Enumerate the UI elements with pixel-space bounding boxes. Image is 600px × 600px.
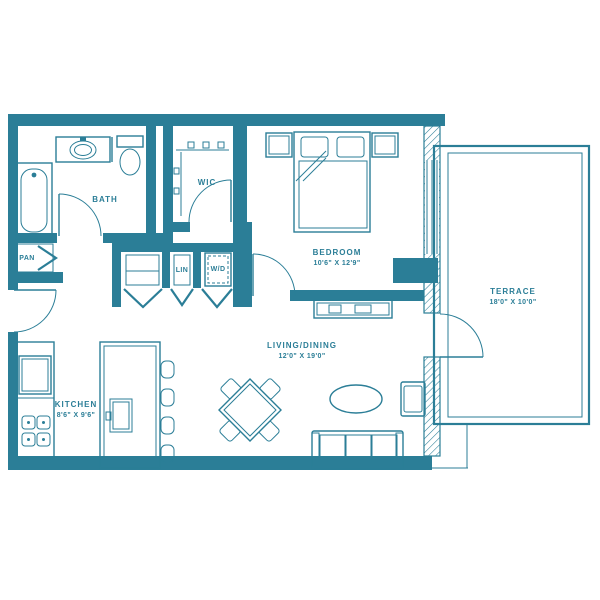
living-dining-dims: 12'0" X 19'0"	[278, 353, 325, 360]
wall-hall-bedroom	[233, 222, 252, 307]
linen-bifold-door	[171, 289, 193, 305]
refrigerator	[19, 356, 51, 394]
washer-dryer-label: W/D	[211, 266, 226, 273]
bedroom-dims: 10'6" X 12'9"	[313, 260, 360, 267]
wall-top	[8, 114, 445, 126]
dresser	[314, 300, 392, 318]
kitchen-label: KITCHEN	[55, 400, 98, 409]
bedroom-window	[425, 160, 439, 254]
wall-right-lower	[424, 357, 440, 456]
entry-door	[14, 290, 56, 332]
floor-plan: BATH PAN WIC LIN W/D BEDROOM 10'6" X 12'…	[0, 0, 600, 600]
kitchen-dims: 8'6" X 9'6"	[57, 412, 96, 419]
bedroom-label: BEDROOM	[313, 248, 362, 257]
hall-closet	[126, 255, 159, 285]
living-dining-label: LIVING/DINING	[267, 341, 337, 350]
wall-closet-divider-1	[162, 252, 170, 288]
linen-label: LIN	[176, 267, 188, 274]
room-labels: BATH PAN WIC LIN W/D BEDROOM 10'6" X 12'…	[19, 178, 536, 419]
bedroom-door	[253, 254, 295, 296]
floor-plan-page: BATH PAN WIC LIN W/D BEDROOM 10'6" X 12'…	[0, 0, 600, 600]
kitchen-island	[100, 342, 160, 468]
vanity-sink	[56, 137, 110, 162]
wall-closet-left	[112, 243, 121, 307]
bed	[294, 132, 370, 232]
coffee-table	[330, 385, 382, 413]
nightstand-right	[372, 133, 398, 157]
closet-bifold-door	[124, 289, 162, 307]
washer-dryer-bifold-door	[202, 289, 232, 307]
wall-bedroom-left	[233, 126, 247, 226]
wic-label: WIC	[198, 178, 217, 187]
terrace-label: TERRACE	[490, 287, 536, 296]
living-dining-furniture	[219, 378, 425, 469]
wall-wic-left	[163, 126, 173, 252]
terrace-outer-rail	[434, 146, 589, 424]
armchair	[401, 382, 425, 416]
bar-stools	[161, 361, 174, 462]
wall-closet-top	[112, 243, 252, 252]
nightstand-left	[266, 133, 292, 157]
terrace-door	[440, 314, 483, 357]
pantry-label: PAN	[19, 255, 34, 262]
bathroom	[16, 136, 143, 239]
bath-label: BATH	[92, 195, 118, 204]
stove-burners	[22, 416, 50, 446]
bedroom-wardrobe-block	[393, 258, 438, 283]
dining-table	[219, 379, 281, 441]
wall-closet-divider-2	[193, 252, 201, 288]
wall-bottom	[8, 456, 432, 470]
wall-wic-bottom	[163, 222, 190, 232]
terrace-inner-rail	[448, 153, 582, 417]
toilet	[117, 136, 143, 175]
wall-pantry-bottom	[8, 272, 63, 283]
bathtub	[16, 163, 52, 239]
wall-bath-right	[146, 126, 156, 243]
terrace	[432, 146, 589, 468]
terrace-dims: 18'0" X 10'0"	[489, 299, 536, 306]
